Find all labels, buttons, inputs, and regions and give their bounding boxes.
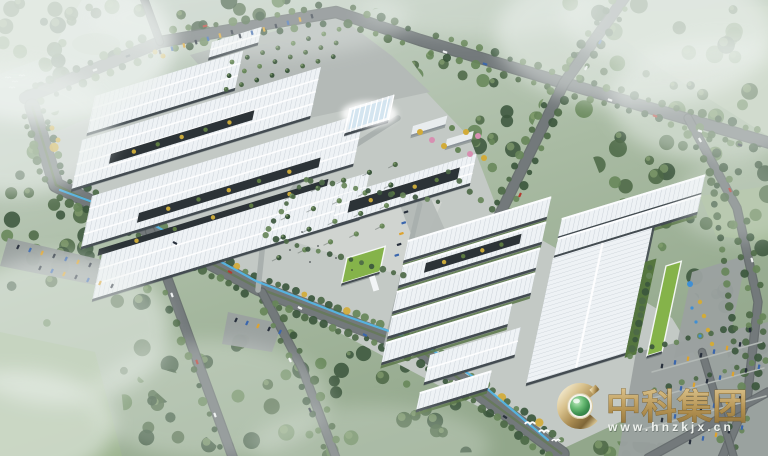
industrial-park-scene: 中科集团 www.hnzkjx.cn www.hnzkjx.cn [0, 0, 768, 456]
aerial-rendering-image: 中科集团 www.hnzkjx.cn www.hnzkjx.cn [0, 0, 768, 456]
logo-website: www.hnzkjx.cn [607, 420, 734, 434]
